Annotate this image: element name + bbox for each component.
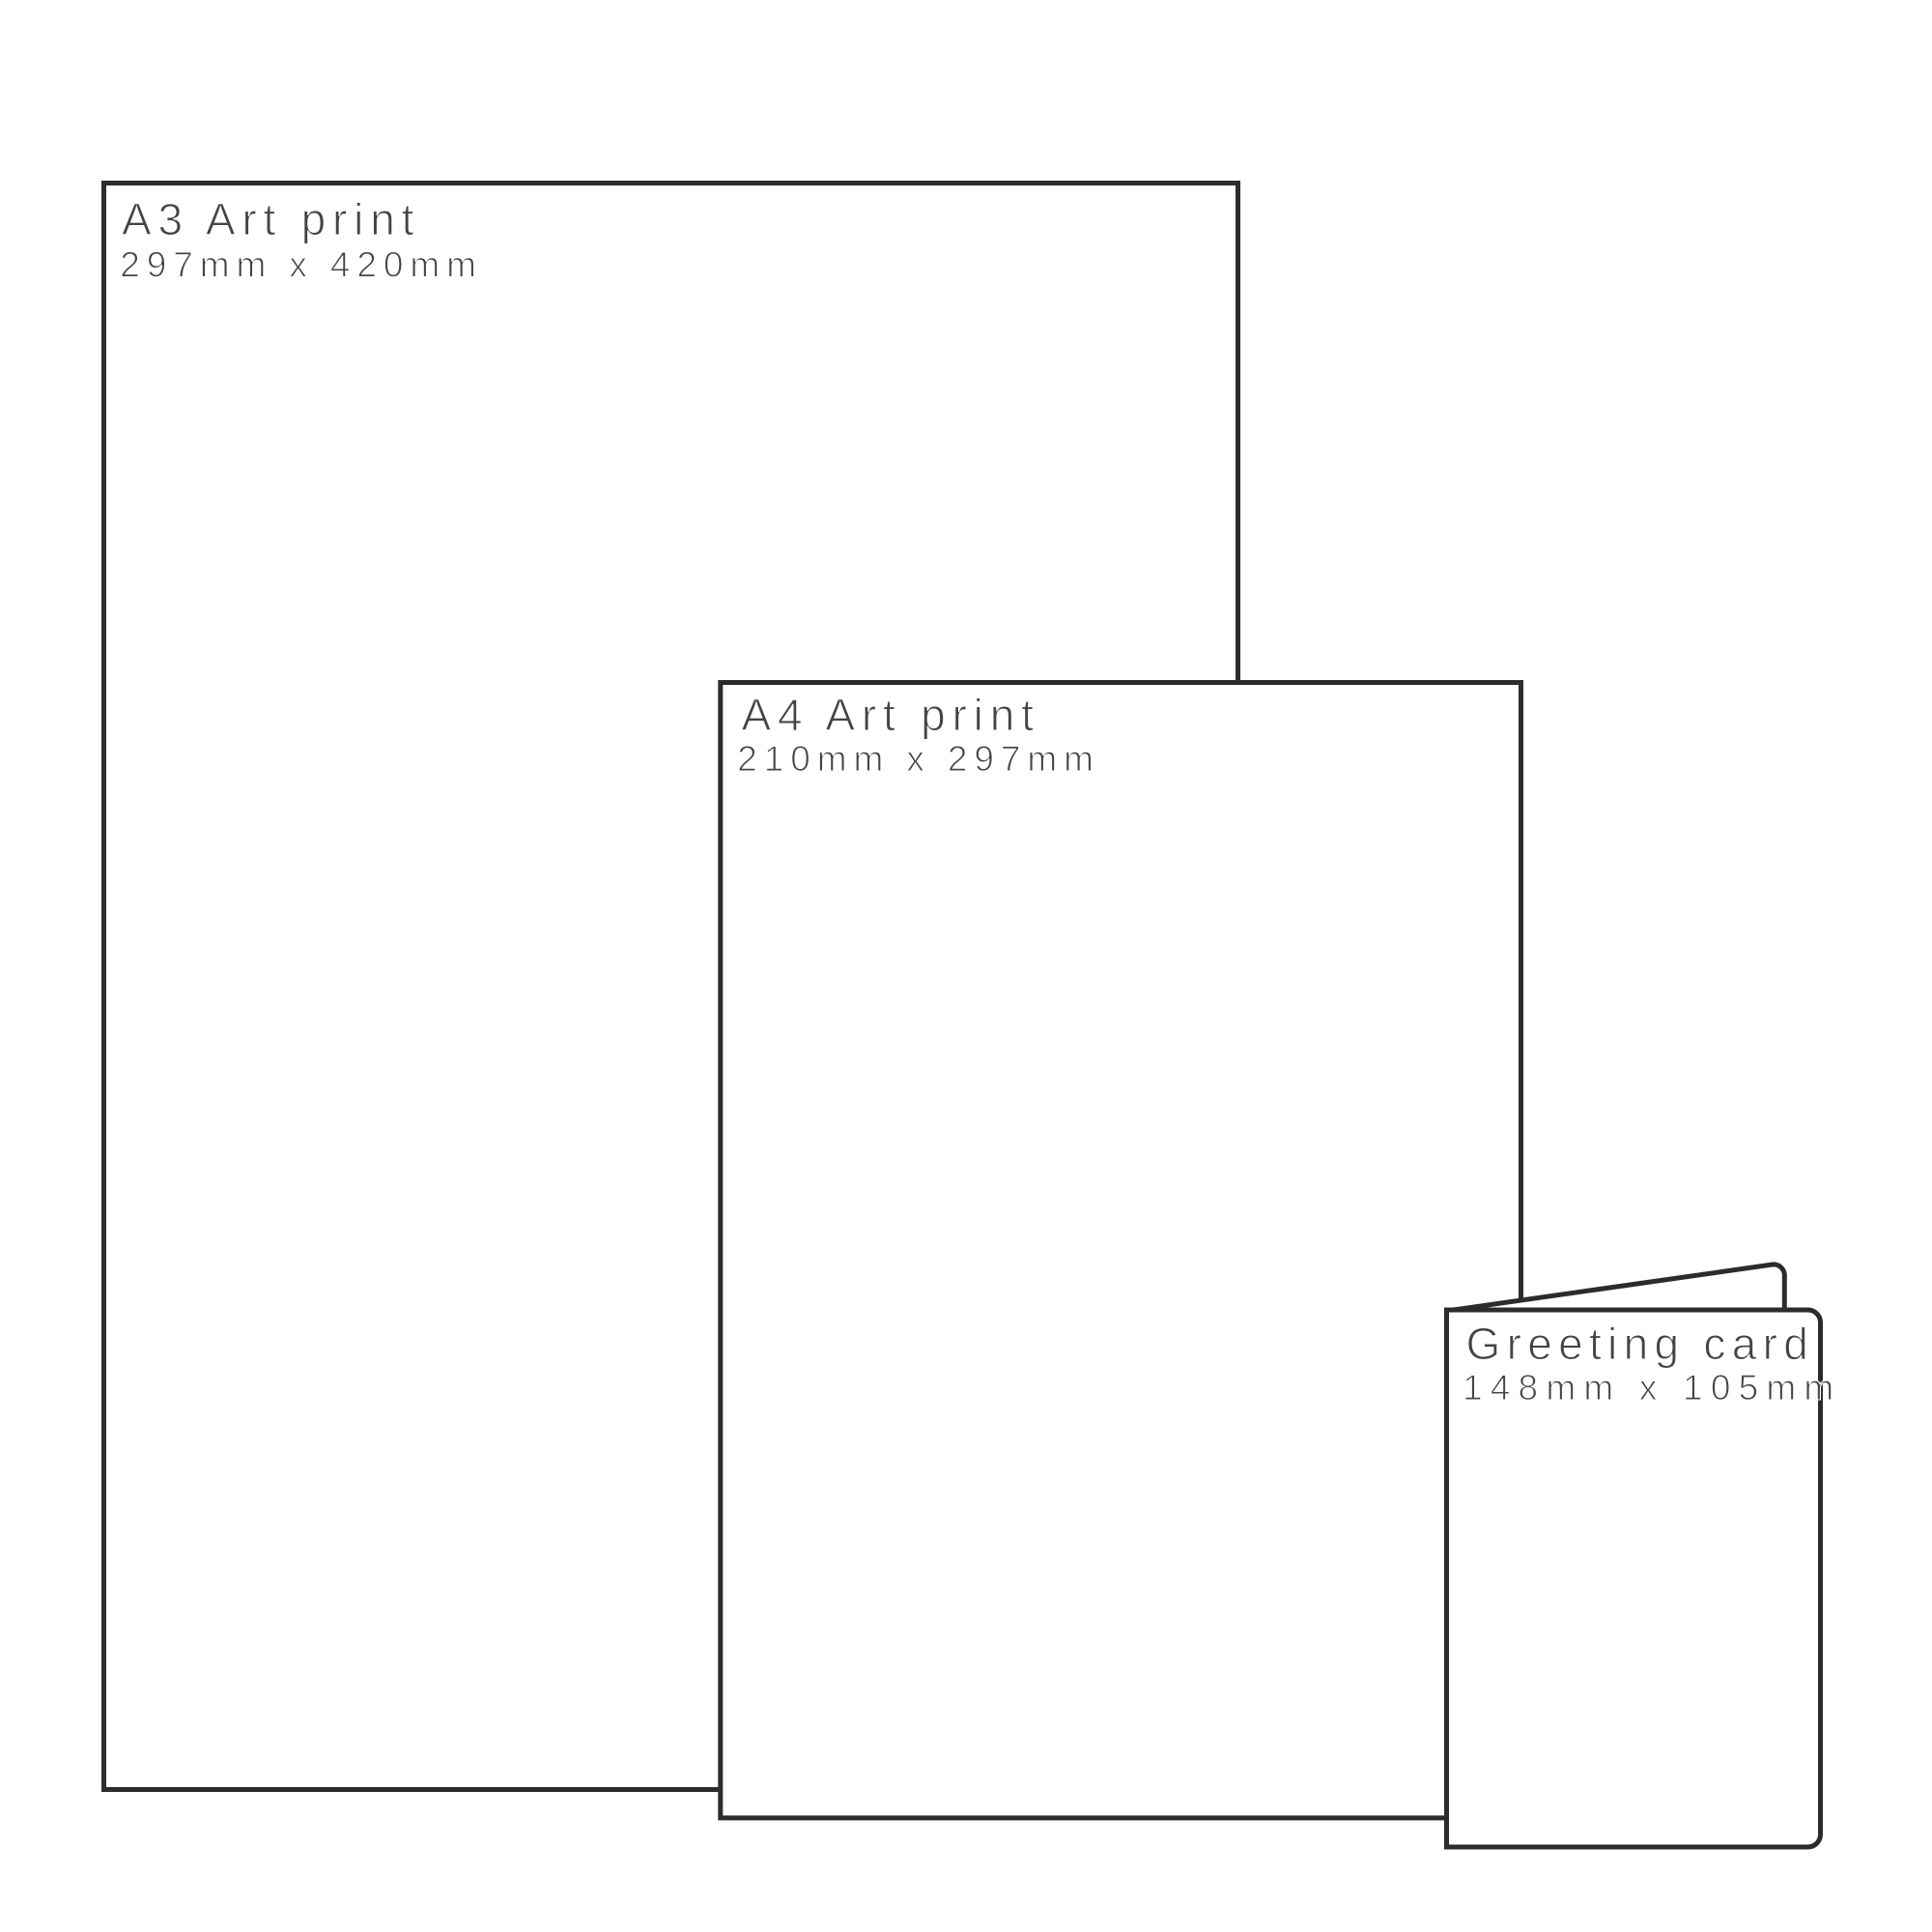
svg-text:210mm x 297mm: 210mm x 297mm: [737, 739, 1100, 779]
svg-text:148mm x 105mm: 148mm x 105mm: [1463, 1368, 1841, 1407]
svg-text:Greeting card: Greeting card: [1466, 1319, 1815, 1369]
svg-text:A3 Art print: A3 Art print: [122, 194, 420, 244]
svg-text:297mm x 420mm: 297mm x 420mm: [120, 244, 483, 284]
svg-text:A4 Art print: A4 Art print: [742, 690, 1040, 740]
